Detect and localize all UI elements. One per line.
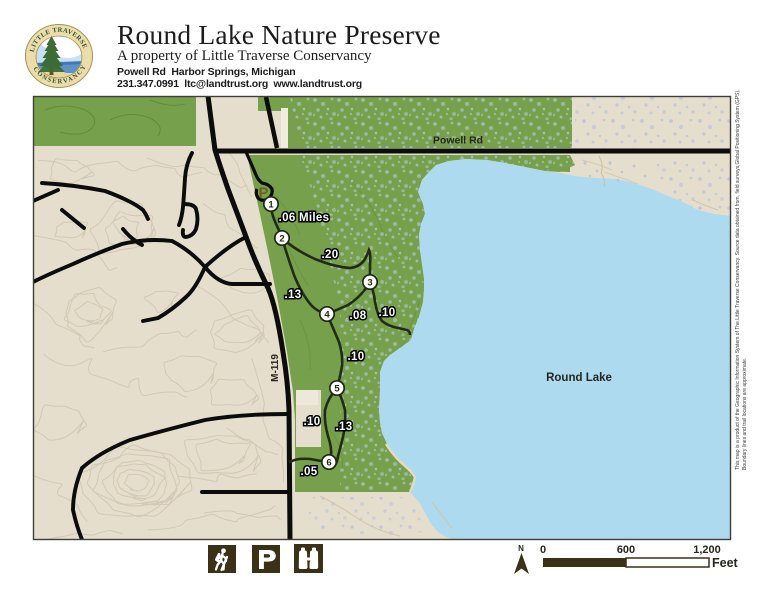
svg-text:M-119: M-119 (270, 354, 281, 382)
svg-text:Powell Rd: Powell Rd (433, 135, 483, 147)
svg-text:.20: .20 (322, 249, 339, 261)
svg-text:5: 5 (334, 384, 340, 395)
svg-text:1,200: 1,200 (693, 544, 721, 556)
svg-text:.10: .10 (379, 307, 396, 319)
svg-text:.13: .13 (285, 289, 302, 301)
svg-text:This map is a product of the G: This map is a product of the Geographic … (735, 89, 741, 470)
svg-text:4: 4 (324, 310, 330, 321)
svg-text:3: 3 (367, 278, 372, 289)
svg-text:600: 600 (617, 544, 635, 556)
svg-text:6: 6 (326, 458, 331, 469)
svg-text:2: 2 (279, 234, 284, 245)
svg-text:Round Lake: Round Lake (546, 372, 612, 384)
svg-text:Boundary lines and trail locat: Boundary lines and trail locations are a… (742, 358, 748, 470)
svg-text:Feet: Feet (712, 556, 739, 570)
svg-text:1: 1 (268, 200, 274, 211)
svg-text:.10: .10 (348, 351, 365, 363)
svg-text:.08: .08 (350, 310, 367, 322)
svg-text:.06 Miles: .06 Miles (279, 212, 330, 224)
svg-text:.13: .13 (336, 421, 353, 433)
svg-text:N: N (518, 544, 524, 553)
svg-text:.10: .10 (304, 416, 321, 428)
svg-text:.05: .05 (301, 466, 318, 478)
svg-text:0: 0 (540, 544, 546, 556)
